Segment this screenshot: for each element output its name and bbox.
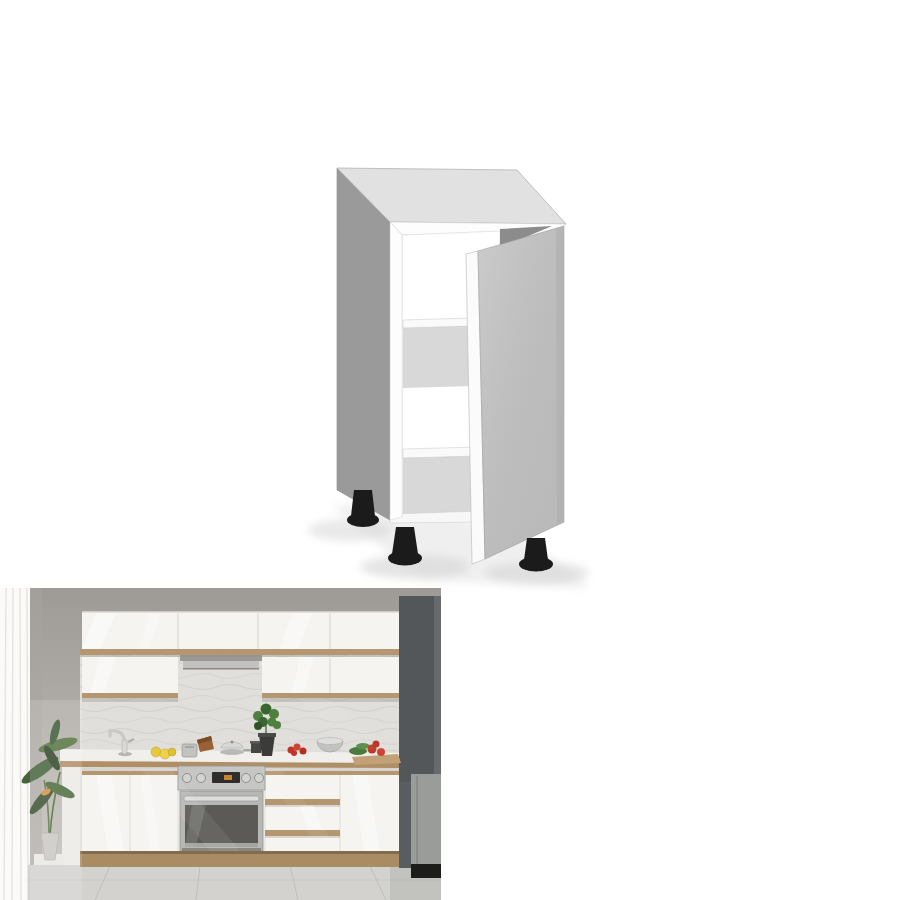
cooker-hood [180, 655, 262, 670]
hood-bottom-line [183, 668, 259, 670]
foot-stem-middle [392, 527, 418, 554]
page [0, 0, 900, 900]
fridge-body [411, 774, 441, 868]
foot-base-middle [388, 551, 422, 566]
shelf-edge-lower [403, 447, 478, 458]
shelf-edge-upper [403, 318, 473, 328]
shelf-band-lower [403, 455, 478, 516]
cabinet-underside-shadow-left [82, 698, 178, 702]
wood-edge-left [82, 693, 178, 698]
foot-base-left [347, 513, 379, 527]
cabinet-render-svg [295, 150, 615, 600]
upper-row2-right-doors [262, 657, 401, 695]
drawer-groove-2 [265, 830, 340, 836]
plinth-top-shade [80, 851, 401, 854]
fridge-base [411, 864, 441, 878]
dark-unit-lower-sliver [399, 782, 413, 868]
product-image-cabinet-render[interactable] [295, 150, 615, 600]
door-face-shading [478, 226, 564, 559]
cabinet-side-panel [337, 168, 390, 520]
upper-cabinet-top-edge [82, 611, 401, 613]
tiled-floor [28, 865, 441, 900]
upper-row1-doors [82, 612, 401, 650]
shelf-band-upper [403, 325, 473, 388]
hood-steel-strip [183, 661, 259, 668]
plinth [80, 851, 401, 867]
window-curtain [0, 588, 30, 900]
product-image-kitchen-scene[interactable] [0, 588, 441, 900]
kitchen-photo-svg [0, 588, 441, 900]
tall-dark-unit [399, 596, 441, 878]
cabinet-open-door [466, 226, 564, 564]
foot-stem-left [351, 490, 375, 516]
wood-edge-right [262, 693, 401, 698]
floor-field [28, 865, 441, 900]
foot-base-right [519, 557, 553, 572]
oven-display-digits [224, 775, 232, 780]
toaster [182, 744, 197, 757]
cabinet-left-stile [390, 222, 402, 520]
wood-strip-middle [80, 649, 403, 655]
door-outer-edge [556, 226, 564, 525]
hood-recess-shadow [180, 655, 262, 661]
